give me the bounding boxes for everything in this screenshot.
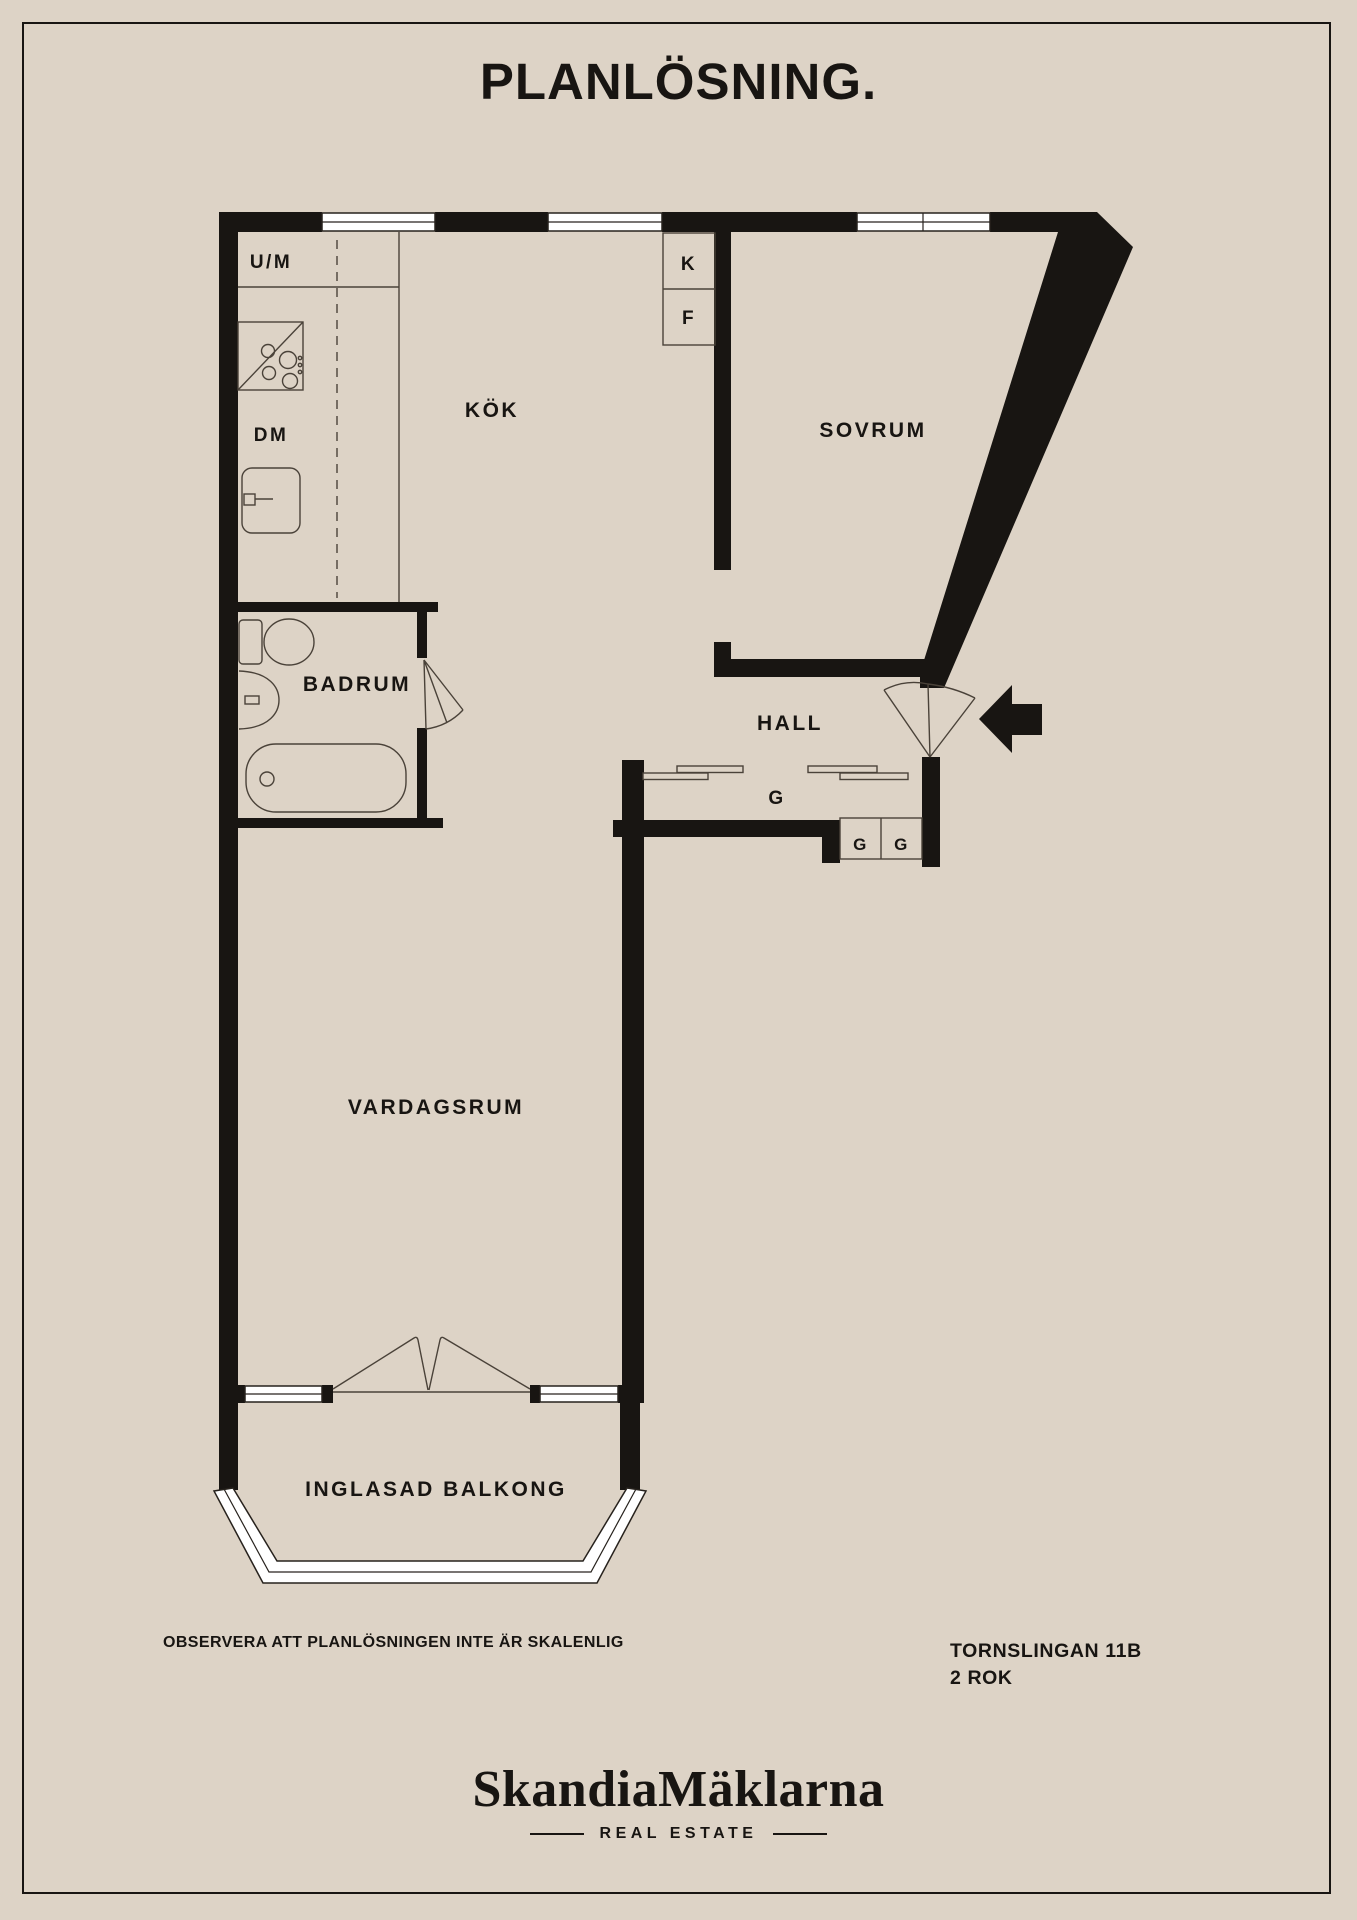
bathroom-door-swing: [424, 660, 463, 729]
rok-line: 2 ROK: [950, 1665, 1142, 1692]
windows: [245, 213, 990, 1402]
brand-logo: SkandiaMäklarna REAL ESTATE: [0, 1760, 1357, 1843]
toilet-icon: [239, 619, 314, 665]
label-closet-1: G: [853, 835, 869, 854]
logo-name: SkandiaMäklarna: [0, 1760, 1357, 1819]
wall-balcony-pier2: [530, 1385, 540, 1403]
label-bedroom: SOVRUM: [819, 419, 926, 442]
address-line: TORNSLINGAN 11B: [950, 1638, 1142, 1665]
label-kitchen: KÖK: [465, 399, 519, 422]
label-washing-machine: U/M: [250, 252, 292, 273]
label-bathroom: BADRUM: [303, 673, 411, 696]
exterior-walls: [219, 212, 1133, 1490]
floorplan-page: PLANLÖSNING.: [0, 0, 1357, 1920]
label-balcony: INGLASAD BALKONG: [305, 1478, 567, 1501]
bathtub-icon: [246, 744, 406, 812]
wall-bathroom-right-lower: [417, 728, 427, 820]
wall-balcony-seg2: [618, 1385, 644, 1403]
wall-diagonal-bedroom: [920, 212, 1133, 688]
entry-arrow-icon: [979, 685, 1042, 753]
wall-bathroom-bottom: [238, 818, 443, 828]
balcony-glazing: [214, 1488, 646, 1583]
washbasin-icon: [239, 671, 279, 729]
logo-tagline: REAL ESTATE: [600, 1825, 758, 1843]
tagline-dash-left: [530, 1833, 584, 1835]
wall-bathroom-top: [238, 602, 438, 612]
wall-kitchen-bedroom: [714, 232, 731, 570]
label-hall-closet: G: [768, 788, 785, 809]
entry-door-swing: [884, 682, 975, 757]
label-livingroom: VARDAGSRUM: [348, 1096, 524, 1119]
wall-bedroom-south: [714, 659, 932, 677]
balcony-right-post: [620, 1403, 640, 1490]
scale-disclaimer: OBSERVERA ATT PLANLÖSNINGEN INTE ÄR SKAL…: [163, 1634, 624, 1652]
floorplan-drawing: U/M DM KÖK K F SOVRUM BADRUM HALL G G G …: [0, 0, 1357, 1920]
label-hall: HALL: [757, 712, 823, 735]
folding-door-right-leaf: [429, 1337, 530, 1390]
label-freezer: F: [682, 308, 696, 329]
balcony-elements: [214, 1337, 646, 1583]
label-closet-2: G: [894, 835, 910, 854]
wall-balcony-seg1: [219, 1385, 245, 1403]
label-dishwasher: DM: [254, 425, 289, 446]
wall-livingroom-right: [622, 760, 644, 1385]
folding-door-left-leaf: [333, 1337, 428, 1390]
wall-top-seg3: [662, 212, 857, 232]
wall-hall-bottom: [613, 820, 822, 837]
wall-left: [219, 212, 238, 1490]
wall-bathroom-right-upper: [417, 602, 427, 658]
sliding-wardrobe-tracks: [643, 766, 908, 780]
wall-balcony-pier1: [322, 1385, 333, 1403]
tagline-dash-right: [773, 1833, 827, 1835]
address-block: TORNSLINGAN 11B 2 ROK: [950, 1638, 1142, 1692]
bathroom-fixtures: [239, 619, 463, 812]
wall-right-lower: [922, 757, 940, 867]
interior-walls: [238, 232, 932, 1385]
balcony-glazing-midline: [224, 1489, 636, 1572]
logo-tagline-row: REAL ESTATE: [0, 1825, 1357, 1843]
stove-icon: [238, 322, 303, 390]
wall-hall-bottom-step: [822, 820, 840, 863]
kitchen-sink-icon: [242, 468, 300, 533]
wall-top-seg2: [435, 212, 548, 232]
label-fridge: K: [681, 254, 697, 275]
